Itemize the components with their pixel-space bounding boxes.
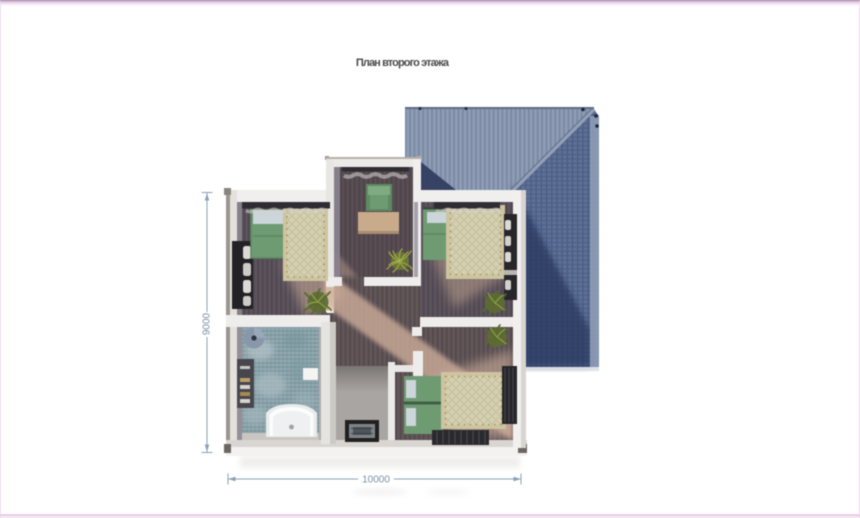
svg-text:План второго этажа: План второго этажа bbox=[356, 57, 450, 69]
svg-text:9000: 9000 bbox=[202, 312, 213, 335]
svg-text:10000: 10000 bbox=[362, 475, 390, 486]
